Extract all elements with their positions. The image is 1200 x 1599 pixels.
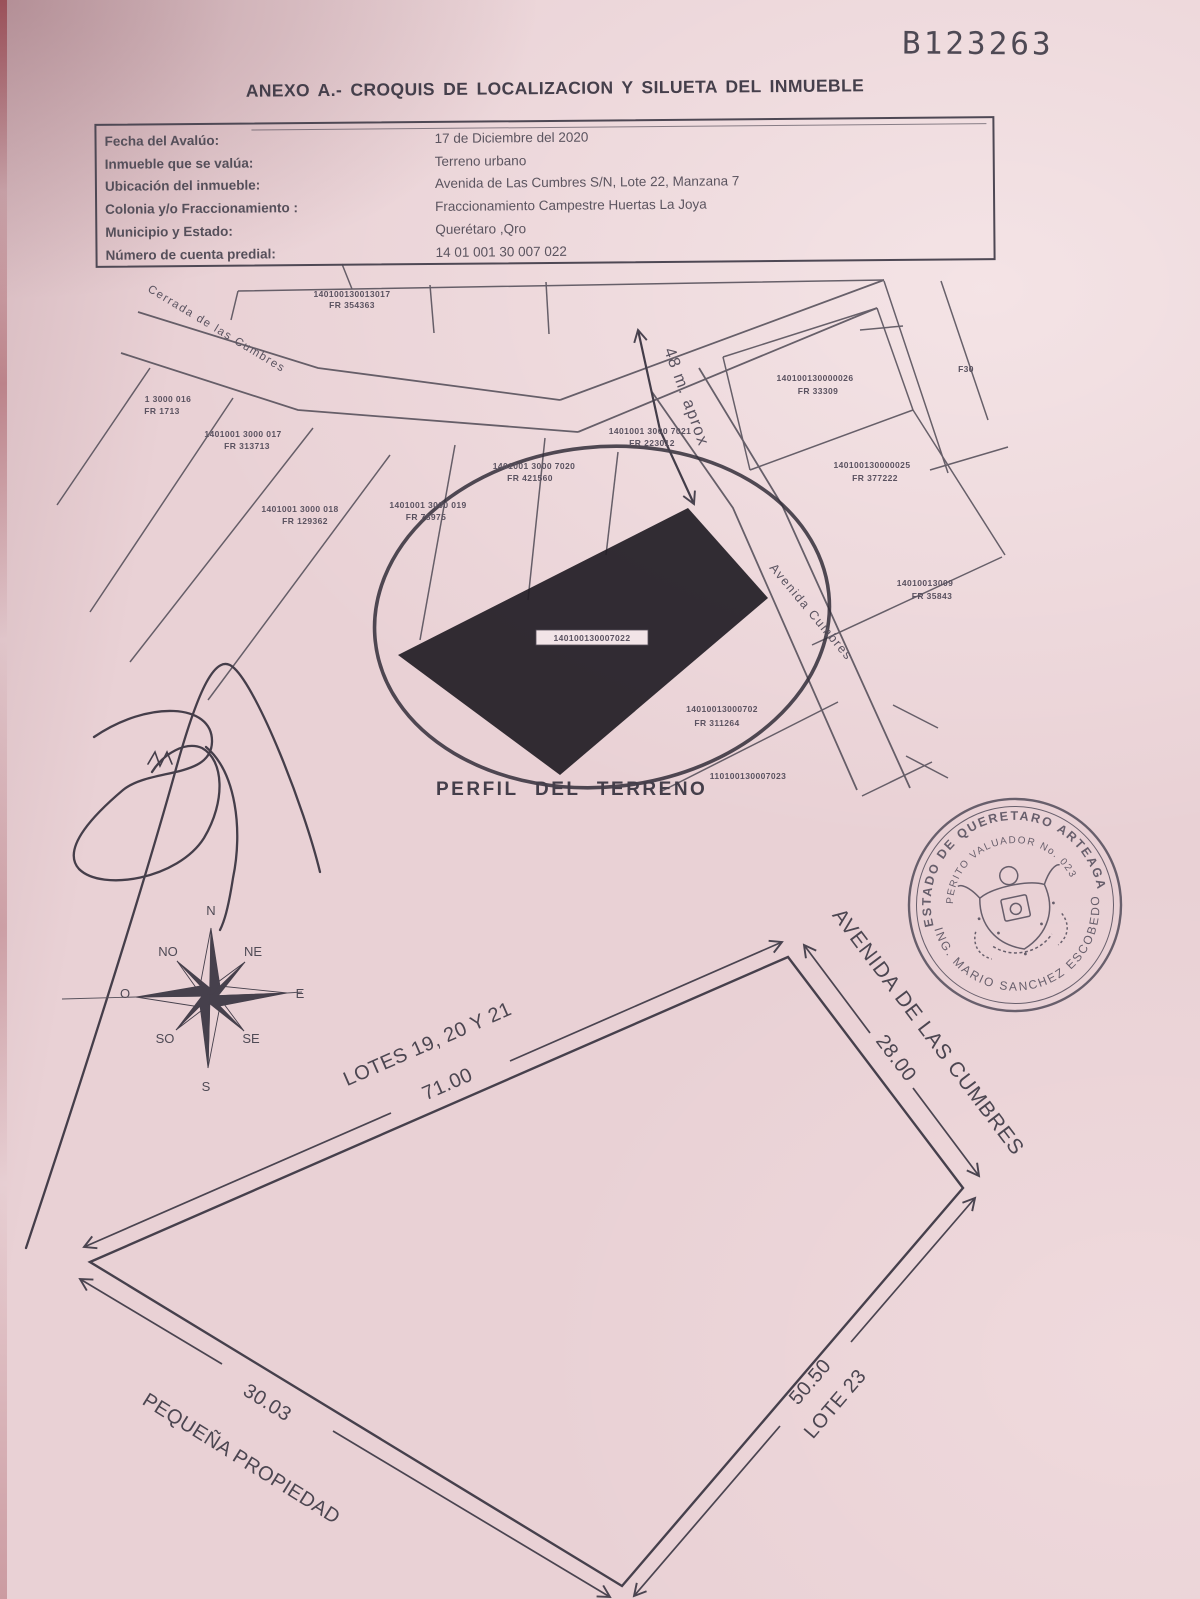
svg-text:ESTADO DE QUERETARO ARTEAGA: ESTADO DE QUERETARO ARTEAGA: [902, 791, 1109, 928]
subject-parcel-id: 140100130007022: [554, 633, 631, 643]
svg-text:FR 35843: FR 35843: [912, 591, 953, 601]
svg-text:FR 354363: FR 354363: [329, 300, 375, 310]
compass-n: N: [206, 903, 215, 918]
svg-text:FR 421560: FR 421560: [507, 473, 553, 483]
svg-text:1401001 3000 018: 1401001 3000 018: [261, 504, 338, 514]
compass-ne: NE: [244, 944, 262, 959]
svg-text:14010013009: 14010013009: [897, 578, 953, 588]
svg-text:1401001 3000 017: 1401001 3000 017: [204, 429, 281, 439]
svg-text:1401001 3000 7020: 1401001 3000 7020: [493, 461, 575, 471]
seal-arc-bottom: ING. MARIO SANCHEZ ESCOBEDO: [931, 892, 1118, 1010]
svg-text:FR 311264: FR 311264: [694, 718, 739, 728]
valuator-seal: ESTADO DE QUERETARO ARTEAGA PERITO VALUA…: [889, 779, 1140, 1030]
svg-text:FR 377222: FR 377222: [852, 473, 898, 483]
svg-text:FR 1713: FR 1713: [144, 406, 179, 416]
coat-of-arms: [956, 856, 1077, 966]
edge-top-name: LOTES 19, 20 Y 21: [340, 998, 515, 1091]
svg-text:140100130013017: 140100130013017: [314, 289, 391, 299]
compass-s: S: [202, 1079, 211, 1094]
edge-right-name: AVENIDA DE LAS CUMBRES: [828, 904, 1029, 1159]
compass-so: SO: [156, 1031, 175, 1046]
svg-text:1401001 3000 019: 1401001 3000 019: [389, 500, 466, 510]
map-caption: PERFIL DEL TERRENO: [436, 779, 707, 801]
compass-rose: N NE E SE S SO O NO: [62, 903, 305, 1094]
edge-top-dim: 71.00: [419, 1064, 476, 1105]
svg-text:14010013000702: 14010013000702: [686, 704, 758, 714]
svg-text:1 3000 016: 1 3000 016: [145, 394, 192, 404]
street-label-cerrada: Cerrada de las Cumbres: [145, 283, 287, 375]
lot-outline: [90, 957, 963, 1586]
compass-o: O: [120, 986, 130, 1001]
edge-bottomleft-name: PEQUEÑA PROPIEDAD: [138, 1387, 345, 1528]
svg-text:140100130000025: 140100130000025: [834, 460, 911, 470]
svg-text:F30: F30: [958, 364, 974, 374]
edge-bottomleft-dim: 30.03: [239, 1380, 295, 1427]
svg-text:ING. MARIO SANCHEZ ESCOBEDO: ING. MARIO SANCHEZ ESCOBEDO: [931, 892, 1118, 1010]
svg-text:FR 33309: FR 33309: [798, 386, 839, 396]
svg-text:110100130007023: 110100130007023: [710, 771, 786, 781]
svg-text:FR 129362: FR 129362: [282, 516, 328, 526]
svg-text:1401001 3000 7021: 1401001 3000 7021: [609, 426, 691, 436]
svg-text:140100130000026: 140100130000026: [777, 373, 854, 383]
street-label-avenida: Avenida Cumbres: [767, 561, 856, 663]
seal-arc-top: ESTADO DE QUERETARO ARTEAGA: [902, 791, 1109, 928]
svg-text:FR 313713: FR 313713: [224, 441, 270, 451]
compass-no: NO: [158, 944, 178, 959]
svg-text:FR 78975: FR 78975: [406, 512, 447, 522]
compass-se: SE: [242, 1031, 260, 1046]
svg-text:FR 223012: FR 223012: [629, 438, 675, 448]
compass-e: E: [296, 986, 305, 1001]
